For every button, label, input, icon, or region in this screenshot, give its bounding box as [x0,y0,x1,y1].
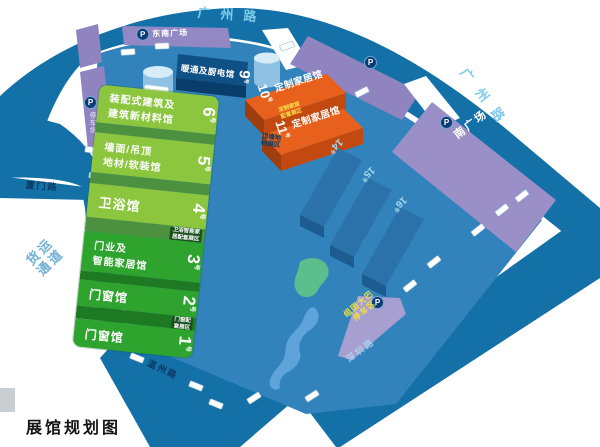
hall-3-number: 3号 [181,253,203,270]
hall-4-number: 4号 [187,203,209,220]
hall-2-number: 2号 [177,295,199,312]
hall-6-number: 6号 [197,106,219,123]
hall-1-number: 1号 [173,335,195,352]
page-title: 展馆规划图 [26,420,121,438]
southeast-square-text: 东南广场 [152,27,188,39]
tank-1-top [143,66,173,78]
parking-icon-south: P [440,116,453,129]
road-label-xiamen: 厦门路 [25,180,59,193]
southeast-square-label: P 东南广场 [136,26,188,41]
tank-2-top [254,53,280,64]
parking-icon: P [136,28,149,41]
corner-block [0,388,15,412]
parking-icon-west: P [84,96,97,109]
parking-icon-topright: P [364,56,377,69]
exhibition-map: 广州路 广州路 厦门路 温州路 深圳路 货运 通道 P 东南广场 P 停车场 P… [0,0,600,447]
hall-9-number: 9号 [233,69,253,85]
hall-9-name: 暖通及厨电馆 [180,64,235,80]
hall-5-number: 5号 [192,155,214,172]
parking-strip-a [76,24,102,68]
